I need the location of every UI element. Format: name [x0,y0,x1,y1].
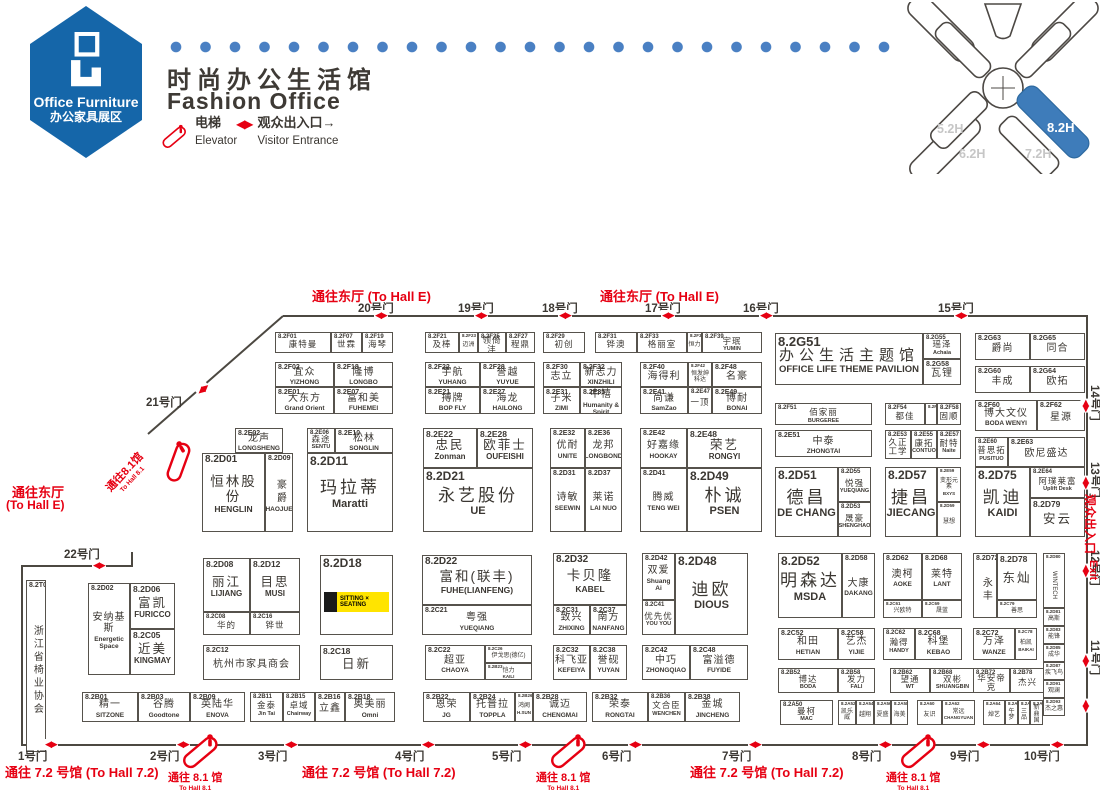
booth-name-zh: 鸿阙 [518,703,530,709]
visitor-entrance-icon: ◀▶ [92,560,106,571]
booth-8.2D01[interactable]: 8.2D01恒林股份HENGLIN [202,453,265,532]
booth-8.2F33[interactable]: 8.2F33格丽室 [637,332,687,353]
booth-8.2E27[interactable]: 8.2E27海龙HAILONG [480,387,535,414]
booth-name-en: YUEQIANG [460,625,495,632]
booth-8.2E42[interactable]: 8.2E42好嘉缘HOOKAY [640,428,687,468]
chair-icon [61,32,111,90]
booth-name-zh: 誉越 [497,368,519,379]
gate-label-6号门: 6号门 [602,748,631,764]
booth-8.2F18[interactable]: 8.2F18隆博LONGBO [334,362,393,387]
booth-8.2F32[interactable]: 8.2F32新志力XINZHILI [580,362,622,387]
booth-8.2E01[interactable]: 8.2E01大东方Grand Orient [275,387,334,414]
booth-name: 兴欧特 [884,601,921,617]
booth-name: 托普拉TOPPLA [471,693,514,721]
booth-name-en: SENTU [312,445,331,451]
visitor-entrance-icon: ◀▶ [474,310,488,321]
booth-name-zh: 新志力 [585,368,618,379]
booth-8.2D83[interactable]: 8.2D83能锋 [1043,626,1065,644]
booth-8.2D42[interactable]: 8.2D42双爱Shuang Ai [642,553,675,600]
booth-name: 丽江LIJIANG [204,559,249,611]
booth-8.2D85[interactable]: 8.2D85成华 [1043,644,1065,662]
booth-8.2F56[interactable]: 8.2F56 [925,403,937,425]
booth-name-zh: 格丽室 [648,340,677,349]
escalator-icon [160,115,190,149]
booth-8.2C12[interactable]: 8.2C12杭州市家具商会 [203,645,300,680]
booth-name: 欧拓 [1031,367,1084,392]
booth-8.2A56[interactable]: 8.2A56夏盛 [874,700,891,725]
booth-8.2D53[interactable]: 8.2D53晟豪SHENGHAO [838,502,871,537]
booth-name: 浙江省椅业协会 [27,581,45,751]
booth-name: 久正工学 [886,431,910,458]
to-hall-8-1-zh: 通往 8.1 馆 [886,772,940,785]
booth-8.2F27[interactable]: 8.2F27程鼎 [506,332,535,353]
booth-8.2B09[interactable]: 8.2B09英陆华ENOVA [190,692,245,722]
booth-8.2E63[interactable]: 8.2E63欧尼盛达 [1008,437,1085,467]
booth-name: 程鼎 [507,333,534,352]
booth-8.2E22[interactable]: 8.2E22忠民Zonman [423,428,477,468]
booth-name-en: HAOJUE [265,506,292,513]
booth-name-zh: 晟豪 [845,514,864,523]
booth-8.2A58[interactable]: 8.2A58海美 [891,700,908,725]
booth-8.2D72[interactable]: 8.2D72永丰 [973,553,997,618]
booth-name-en: TENG WEI [647,505,679,512]
booth-8.2A68[interactable]: 8.2A68三品 [1018,700,1030,725]
booth-8.2A52[interactable]: 8.2A52凯乐威 [838,700,856,725]
booth-name-zh: 誉砚 [598,656,620,667]
booth-8.2C42[interactable]: 8.2C42中巧ZHONGQIAO [642,645,690,680]
booth-name: 中泰ZHONGTAI [776,431,871,456]
booth-8.2E21[interactable]: 8.2E21搏牌BOP FLY [425,387,480,414]
booth-8.2F48[interactable]: 8.2F48名豪 [712,362,762,387]
booth-8.2D12[interactable]: 8.2D12目思MUSI [250,558,300,612]
booth-name-zh: 恒林股份 [203,475,264,504]
booth-8.2F39[interactable]: 8.2F39宇珉YUMIN [702,332,762,353]
booth-8.2F60[interactable]: 8.2F60博大文仪BODA WENYI [975,400,1037,431]
booth-8.2D49[interactable]: 8.2D49朴诚PSEN [687,468,762,532]
booth-8.2E32[interactable]: 8.2E32优耐UNITE [550,428,585,468]
booth-name-zh: 耐特 [939,439,958,448]
booth-8.2E53[interactable]: 8.2E53久正工学 [885,430,911,459]
booth-8.2F54[interactable]: 8.2F54都佳 [885,403,925,425]
booth-8.2E28[interactable]: 8.2E28欧菲士OUFEISHI [477,428,533,468]
booth-name: 迪欧DIOUS [676,554,747,634]
booth-name-en: WT [906,685,915,691]
booth-8.2C78[interactable]: 8.2C78柏凯BAIKAI [1015,628,1037,660]
booth-name-en: SHUANGBIN [936,685,969,691]
booth-8.2B68[interactable]: 8.2B68双彬SHUANGBIN [930,668,975,693]
booth-name: 豪爵HAOJUE [266,454,292,531]
booth-name-zh: 富溢德 [703,656,736,667]
booth-8.2E36[interactable]: 8.2E36龙邦LONGBOND [585,428,622,468]
booth-8.2B38[interactable]: 8.2B38金城JINCHENG [685,692,740,722]
booth-8.2D75[interactable]: 8.2D75凯迪KAIDI [975,467,1030,537]
booth-8.2F31[interactable]: 8.2F31铧澳 [595,332,637,353]
booth-name-zh: 浙江省椅业协会 [31,625,42,716]
booth-name-zh: 宜众 [294,368,316,379]
booth-name-zh: 恒发绅科达 [689,371,711,384]
booth-8.2C68[interactable]: 8.2C68科堡KEBAO [915,628,962,660]
booth-8.2E06[interactable]: 8.2E06森途SENTU [307,428,335,453]
booth-8.2G64[interactable]: 8.2G64欧拓 [1030,366,1085,393]
booth-8.2B58[interactable]: 8.2B58发力FALI [838,668,875,693]
booth-8.2A70[interactable]: 8.2A70新鼎国 [1030,700,1043,725]
booth-name-en: YUEQIANG [840,489,869,495]
booth-name: 星源 [1038,401,1084,430]
booth-name: 致兴ZHIXING [554,606,589,634]
booth-name-zh: 永丰 [980,577,991,603]
booth-name: 能锋 [1044,627,1064,643]
booth-8.2B01[interactable]: 8.2B01精一SITZONE [82,692,138,722]
booth-name-zh: 龙声 [248,434,270,445]
booth-name-en: DE CHANG [777,508,836,520]
hall-7-2h-label: 7.2H [1025,147,1051,161]
booth-8.2D37[interactable]: 8.2D37莱诺LAI NUO [585,468,622,532]
booth-8.2C41[interactable]: 8.2C41优先优YOU YOU [642,600,675,635]
wayfinding-text: (To Hall E) [6,498,64,512]
booth-8.2B28[interactable]: 8.2B28诚迈CHENGMAI [533,692,587,722]
booth-name: 康拓CONTUO [912,431,936,458]
booth-8.2F19[interactable]: 8.2F19海琴 [362,332,393,353]
booth-8.2B16[interactable]: 8.2B16立鑫 [315,692,345,722]
booth-name-en: YUMIN [723,347,741,353]
booth-8.2F01[interactable]: 8.2F01康特曼 [275,332,331,353]
booth-name: 恺力KAILI [486,664,531,679]
booth-name: 万泽WANZE [974,629,1014,659]
booth-name-en: AOKE [893,581,912,588]
booth-8.2D80[interactable]: 8.2D80WINTECH [1043,553,1065,608]
booth-name-zh: 能锋 [1048,634,1060,640]
booth-8.2D58[interactable]: 8.2D58大康DAKANG [842,553,875,618]
booth-8.2F58[interactable]: 8.2F58固顺 [937,403,961,425]
to-hall-8-1-label: 通往 8.1 馆To Hall 8.1 [886,772,940,790]
booth-8.2D78[interactable]: 8.2D78东灿 [997,553,1037,600]
booth-8.2T01[interactable]: 8.2T01浙江省椅业协会 [26,580,46,752]
visitor-entrance-icon: ◀▶ [44,739,58,750]
booth-8.2B18[interactable]: 8.2B18奥美丽Omni [345,692,395,722]
booth-8.2D52[interactable]: 8.2D52明森达MSDA [778,553,842,618]
booth-name: 安纳基斯Energetic Space [89,584,129,674]
booth-8.2C05[interactable]: 8.2C05近美KINGMAY [130,629,175,675]
booth-8.2D21[interactable]: 8.2D21永艺股份UE [423,468,533,532]
booth-name: 粤强YUEQIANG [423,606,531,634]
booth-name: 大东方Grand Orient [276,388,333,413]
booth-8.2B62[interactable]: 8.2B62望通WT [890,668,930,693]
booth-name: 卓域Chairway [284,693,314,721]
booth-name-en: ENOVA [206,712,229,719]
booth-8.2B52[interactable]: 8.2B52博达BODA [778,668,838,693]
visitor-entrance-icon: ◀▶ [628,739,642,750]
booth-8.2G60[interactable]: 8.2G60丰成 [975,366,1030,393]
booth-8.2B15[interactable]: 8.2B15卓域Chairway [283,692,315,722]
booth-8.2G55[interactable]: 8.2G55瑶泽Achaia [923,333,961,359]
booth-8.2F07[interactable]: 8.2F07世霖 [331,332,362,353]
booth-name-en: ZHONGQIAO [646,667,686,674]
booth-8.2B36[interactable]: 8.2B36文合臣WENCHEN [648,692,685,722]
booth-name: 安云 [1031,499,1084,536]
booth-name-zh: 三品 [1019,709,1029,722]
booth-8.2E60[interactable]: 8.2E60普思拓PUSITUO [975,437,1008,467]
dotted-divider [170,41,896,53]
booth-8.2D62[interactable]: 8.2D62澳柯AOKE [883,553,922,600]
booth-8.2E10[interactable]: 8.2E10松林SONGLIN [335,428,393,453]
booth-8.2B24[interactable]: 8.2B24托普拉TOPPLA [470,692,515,722]
booth-8.2D41[interactable]: 8.2D41腾威TENG WEI [640,468,687,532]
booth-8.2D22[interactable]: 8.2D22富和(联丰)FUHE(LIANFENG) [422,555,532,605]
booth-name: 卡贝隆KABEL [554,554,626,604]
booth-8.2F29[interactable]: 8.2F29初创 [543,332,585,353]
booth-name: 善思 [998,601,1036,617]
booth-8.2F02[interactable]: 8.2F02宜众YIZHONG [275,362,334,387]
booth-name-en: JIECANG [887,508,936,520]
booth-8.2F30[interactable]: 8.2F30志立 [543,362,580,387]
booth-name-en: KAIDI [988,508,1018,520]
booth-8.2G51[interactable]: 8.2G51办公生活主题馆OFFICE LIFE THEME PAVILION [775,333,923,385]
booth-8.2E35[interactable]: 8.2E35中禧Humanity & Spirit [580,387,622,414]
booth-8.2C38[interactable]: 8.2C38誉砚YUYAN [590,645,627,680]
booth-8.2E49[interactable]: 8.2E49博耐BONAI [712,387,762,414]
to-hall-8-1-label: 通往 8.1 馆To Hall 8.1 [536,772,590,790]
booth-name-zh: WINTECH [1051,571,1057,599]
booth-8.2D55[interactable]: 8.2D55悦强YUEQIANG [838,467,871,502]
booth-8.2E07[interactable]: 8.2E07富和美FUHEMEI [334,387,393,414]
booth-8.2E02[interactable]: 8.2E02龙声LONGSHENG [235,428,283,453]
booth-name-zh: 莱诺 [593,493,615,504]
hall-overview-minimap[interactable]: 5.2H 6.2H 7.2H 8.2H [903,2,1100,174]
booth-name-zh: 荣泰 [609,700,631,711]
to-hall-8-1-zh: 通往 8.1 馆 [168,772,222,785]
booth-8.2D06[interactable]: 8.2D06富凯FURICCO [130,583,175,629]
booth-name: 优先优YOU YOU [643,601,674,634]
booth-name-zh: 科堡 [928,637,950,648]
booth-8.2D93[interactable]: 8.2D93杰之惠 [1043,698,1065,716]
booth-8.2F37[interactable]: 8.2F37恒力 [687,332,702,353]
booth-name: 丰成 [976,367,1029,392]
logo-text-zh: 办公家具展区 [30,110,142,126]
booth-name-en: YUYUE [496,379,518,386]
booth-8.2D59[interactable]: 8.2D59慧想 [937,502,961,537]
booth-8.2D87[interactable]: 8.2D87疾飞鸟 [1043,662,1065,680]
booth-name-en: CHANGYUAN [944,716,973,721]
floorplan-page: Office Furniture 办公家具展区 时尚办公生活馆 Fashion … [0,0,1100,790]
booth-name: 格丽室 [638,333,686,352]
booth-name-zh: 慧想 [943,519,955,525]
booth-name-en: Humanity & Spirit [581,402,621,414]
booth-name-zh: 宇珉 [722,337,741,346]
booth-8.2E31[interactable]: 8.2E31子米ZIMI [543,387,580,414]
booth-8.2D02[interactable]: 8.2D02安纳基斯Energetic Space [88,583,130,675]
visitor-entrance-icon: ◀▶ [748,739,762,750]
booth-name-en: FALI [851,685,863,691]
booth-8.2D31[interactable]: 8.2D31诗敏SEEWIN [550,468,585,532]
booth-8.2E48[interactable]: 8.2E48荣艺RONGYI [687,428,762,468]
booth-8.2C16[interactable]: 8.2C16铧世 [250,612,300,635]
booth-name-en: SHENGHAO [839,524,871,530]
booth-8.2C26[interactable]: 8.2C26伊戈思(德亿) [485,645,532,663]
booth-8.2B11[interactable]: 8.2B11金泰Jin Tai [250,692,283,722]
booth-8.2E59[interactable]: 8.2E59变形元素BXYS [937,467,961,502]
booth-8.2F40[interactable]: 8.2F40海得利 [640,362,688,387]
booth-name: 精一SITZONE [83,693,137,721]
booth-name-en: HOOKAY [650,453,678,460]
booth-8.2D09[interactable]: 8.2D09豪爵HAOJUE [265,453,293,532]
booth-name: 南方NANFANG [591,606,626,634]
booth-name: 博达BODA [779,669,837,692]
booth-8.2E41[interactable]: 8.2E41尚谦SamZao [640,387,688,414]
booth-name-en: BAIKAI [1018,648,1034,653]
booth-8.2E47[interactable]: 8.2E47一顶 [688,387,712,414]
booth-name-en: H.SUN [517,711,531,716]
booth-name: 康特曼 [276,333,330,352]
booth-8.2F21[interactable]: 8.2F21及棒 [425,332,459,353]
booth-name-en: RONGTAI [605,712,635,719]
booth-name-zh: 尚谦 [653,394,675,405]
to-hall-8-1-zh: 通往 8.1 馆 [536,772,590,785]
booth-8.2D48[interactable]: 8.2D48迪欧DIOUS [675,553,748,635]
booth-name: 焯艺 [984,701,1004,724]
booth-8.2B78[interactable]: 8.2B78杰兴 [1010,668,1045,693]
booth-8.2D51[interactable]: 8.2D51德昌DE CHANG [775,467,838,537]
booth-8.2E55[interactable]: 8.2E55康拓CONTUO [911,430,937,459]
booth-name-en: OUFEISHI [486,453,524,462]
booth-8.2G65[interactable]: 8.2G65同合 [1030,333,1085,360]
booth-name: 大康DAKANG [843,554,874,617]
booth-name-en: HAILONG [493,405,523,412]
booth-name-en: YUHANG [438,379,466,386]
booth-8.2C69[interactable]: 8.2C69晟蓝 [922,600,962,618]
booth-name: 悦强YUEQIANG [839,468,870,501]
booth-8.2F23[interactable]: 8.2F23迈洲 [459,332,478,353]
booth-8.2C72[interactable]: 8.2C72万泽WANZE [973,628,1015,660]
booth-name: 玛拉蒂Maratti [308,454,392,531]
booth-name: 富和美FUHEMEI [335,388,392,413]
booth-name-zh: 柏凯 [1020,640,1032,646]
booth-8.2D79[interactable]: 8.2D79安云 [1030,498,1085,537]
booth-8.2D57[interactable]: 8.2D57捷昌JIECANG [885,467,937,537]
booth-8.2C08[interactable]: 8.2C08华的 [203,612,250,635]
booth-8.2F25[interactable]: 8.2F25领倚沣 [478,332,506,353]
booth-name-zh: 观澜 [1048,688,1060,694]
booth-8.2B26[interactable]: 8.2B26鸿阙H.SUN [515,692,533,722]
booth-8.2D08[interactable]: 8.2D08丽江LIJIANG [203,558,250,612]
booth-8.2F22[interactable]: 8.2F22宇航YUHANG [425,362,480,387]
booth-name-zh: 优先优 [644,612,673,621]
booth-name: 朴诚PSEN [688,469,761,531]
booth-name-zh: 明森达 [780,572,840,590]
booth-8.2D32[interactable]: 8.2D32卡贝隆KABEL [553,553,627,605]
booth-8.2B72[interactable]: 8.2B72华安帝克 [973,668,1010,693]
booth-name-en: UNITE [558,453,578,460]
booth-8.2C32[interactable]: 8.2C32科飞亚KEFEIYA [553,645,590,680]
booth-8.2A62[interactable]: 8.2A62常远CHANGYUAN [942,700,975,725]
legend-entrance-en: Visitor Entrance [257,135,338,147]
booth-name-zh: 精一 [99,700,121,711]
booth-8.2C21[interactable]: 8.2C21粤强YUEQIANG [422,605,532,635]
booth-8.2E51[interactable]: 8.2E51中泰ZHONGTAI [775,430,872,457]
booth-name-zh: 久正工学 [886,438,910,456]
booth-8.2F28[interactable]: 8.2F28誉越YUYUE [480,362,535,387]
booth-name-zh: 爵尚 [992,344,1014,355]
booth-8.2C18[interactable]: 8.2C18日新 [320,645,393,680]
booth-name: 欧尼盛达 [1009,438,1084,466]
booth-name-en: YOU YOU [646,622,671,628]
booth-name-zh: 瓦锂 [931,369,953,380]
booth-name-zh: 英陆华 [201,700,234,711]
booth-8.2D18[interactable]: 8.2D18SITTING × SEATING [320,555,393,635]
booth-name: 博耐BONAI [713,388,761,413]
booth-8.2A60[interactable]: 8.2A60友识 [917,700,942,725]
booth-8.2C31[interactable]: 8.2C31致兴ZHIXING [553,605,590,635]
booth-8.2B23[interactable]: 8.2B23恺力KAILI [485,663,532,680]
booth-name: 日新 [321,646,392,679]
booth-name-en: CHENGMAI [542,712,577,719]
booth-8.2B22[interactable]: 8.2B22恩荣JG [423,692,470,722]
booth-name-zh: 兴欧特 [893,608,911,614]
booth-name: 华的 [204,613,249,634]
booth-name-zh: 康拓 [914,439,933,448]
visitor-entrance-icon: ◀▶ [518,739,532,750]
booth-name-en: KAILI [503,675,515,680]
booth-8.2A50[interactable]: 8.2A50曼柯MAC [780,700,833,725]
booth-name-zh: 同合 [1047,344,1069,355]
booth-8.2G63[interactable]: 8.2G63爵尚 [975,333,1030,360]
booth-8.2A64[interactable]: 8.2A64焯艺 [983,700,1005,725]
booth-8.2F51[interactable]: 8.2F51佰家丽BURGEREE [775,403,872,425]
booth-8.2D68[interactable]: 8.2D68莱特LANT [922,553,962,600]
booth-8.2C62[interactable]: 8.2C62瀚得HANDY [883,628,915,660]
booth-8.2A66[interactable]: 8.2A66午梦 [1005,700,1018,725]
booth-8.2F42[interactable]: 8.2F42恒发绅科达 [688,362,712,387]
booth-8.2B32[interactable]: 8.2B32荣泰RONGTAI [592,692,648,722]
booth-8.2C58[interactable]: 8.2C58艺杰YIJIE [838,628,875,660]
booth-8.2F62[interactable]: 8.2F62星源 [1037,400,1085,431]
booth-name: 都佳 [886,404,924,424]
booth-name-zh: 好嘉缘 [647,441,680,452]
booth-name-en: BXYS [943,492,955,497]
booth-name: 办公生活主题馆OFFICE LIFE THEME PAVILION [776,334,922,384]
booth-name-zh: 欧拓 [1047,377,1069,388]
booth-8.2C37[interactable]: 8.2C37南方NANFANG [590,605,627,635]
booth-name-en: Achaia [933,351,951,357]
booth-8.2C61[interactable]: 8.2C61兴欧特 [883,600,922,618]
booth-name-zh: 高斯 [1048,616,1060,622]
booth-8.2C48[interactable]: 8.2C48富溢德FUYIDE [690,645,748,680]
booth-8.2A54[interactable]: 8.2A54越翔 [856,700,874,725]
booth-name-zh: 海美 [893,712,905,718]
booth-8.2G58[interactable]: 8.2G58瓦锂 [923,359,961,385]
booth-name-zh: 及棒 [432,340,451,349]
booth-8.2C22[interactable]: 8.2C22超亚CHAOYA [425,645,485,680]
booth-8.2C52[interactable]: 8.2C52和田HETIAN [778,628,838,660]
booth-name: 超亚CHAOYA [426,646,484,679]
booth-8.2D81[interactable]: 8.2D81高斯 [1043,608,1065,626]
booth-name: 瀚得HANDY [884,629,914,659]
booth-name-zh: 卡贝隆 [567,569,614,584]
booth-name-en: Naite [942,449,955,455]
booth-name-zh: 东灿 [1002,572,1031,586]
booth-8.2E64[interactable]: 8.2E64阿璞莱富Uplift Desk [1030,467,1085,498]
booth-8.2B03[interactable]: 8.2B03谷腾Goodtone [138,692,190,722]
booth-8.2C79[interactable]: 8.2C79善思 [997,600,1037,618]
booth-name-en: SamZao [651,405,676,412]
booth-8.2E57[interactable]: 8.2E57耐特Naite [937,430,961,459]
booth-name: 志立 [544,363,579,386]
booth-name: 优耐UNITE [551,429,584,467]
booth-name: 立鑫 [316,693,344,721]
booth-8.2D91[interactable]: 8.2D91观澜 [1043,680,1065,698]
booth-name-en: YIZHONG [290,379,320,386]
booth-name-zh: 万泽 [983,637,1005,648]
booth-8.2D11[interactable]: 8.2D11玛拉蒂Maratti [307,453,393,532]
